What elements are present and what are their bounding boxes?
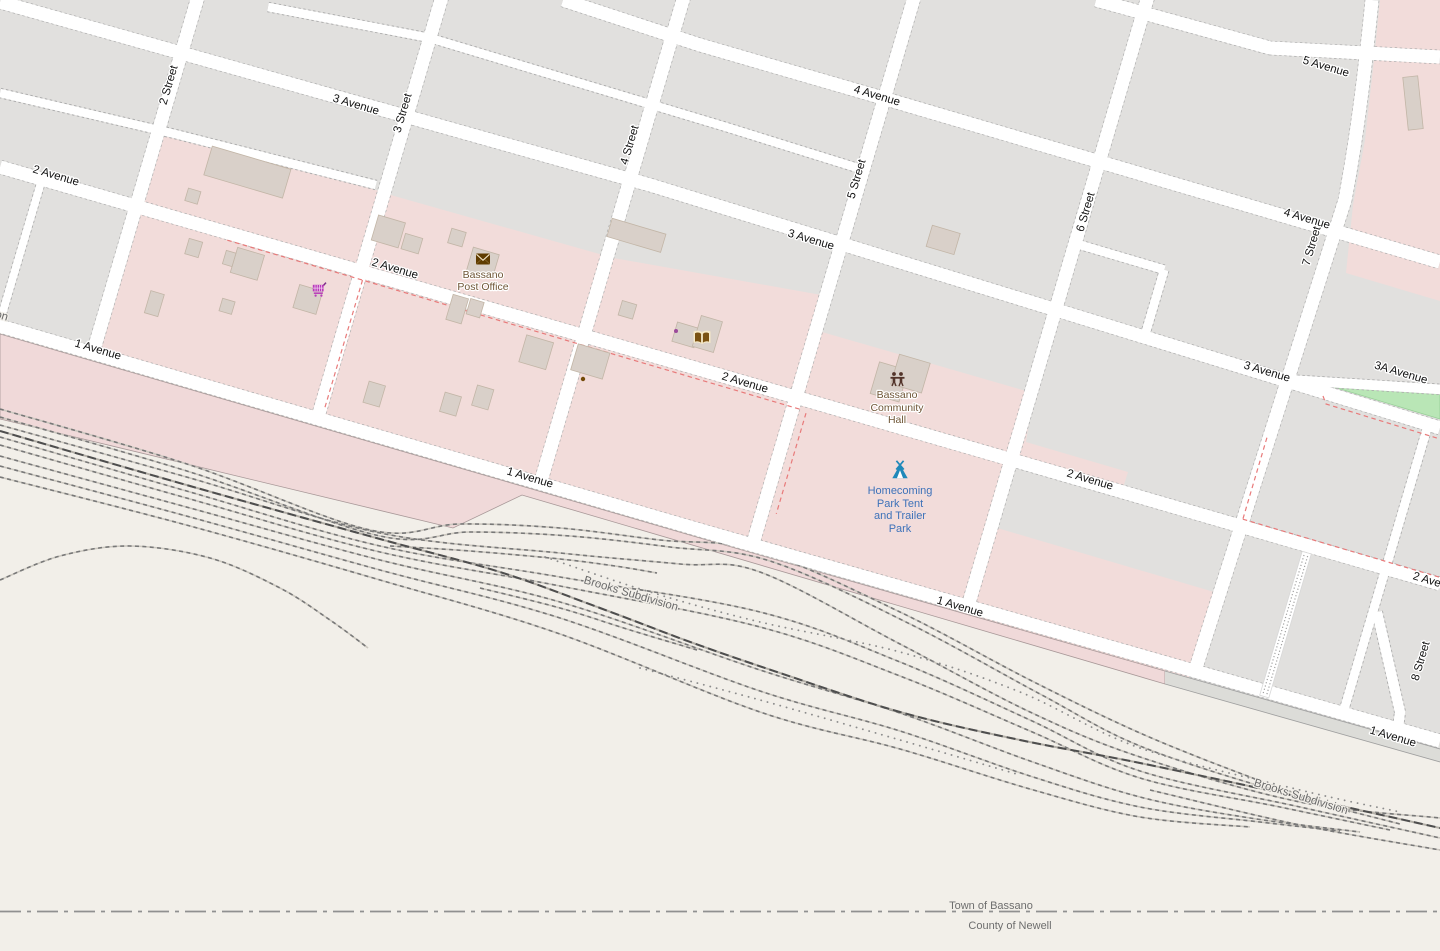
svg-text:Park Tent: Park Tent: [877, 498, 923, 510]
svg-text:Homecoming: Homecoming: [868, 485, 933, 497]
svg-text:Bassano: Bassano: [877, 389, 918, 401]
svg-text:Post Office: Post Office: [457, 281, 508, 293]
svg-text:County of Newell: County of Newell: [968, 920, 1051, 932]
svg-text:Community: Community: [870, 402, 924, 414]
svg-text:Hall: Hall: [888, 414, 906, 426]
svg-text:Bassano: Bassano: [463, 269, 504, 281]
svg-text:and Trailer: and Trailer: [874, 510, 926, 522]
svg-text:Town of Bassano: Town of Bassano: [949, 900, 1033, 912]
svg-text:Park: Park: [889, 523, 912, 535]
